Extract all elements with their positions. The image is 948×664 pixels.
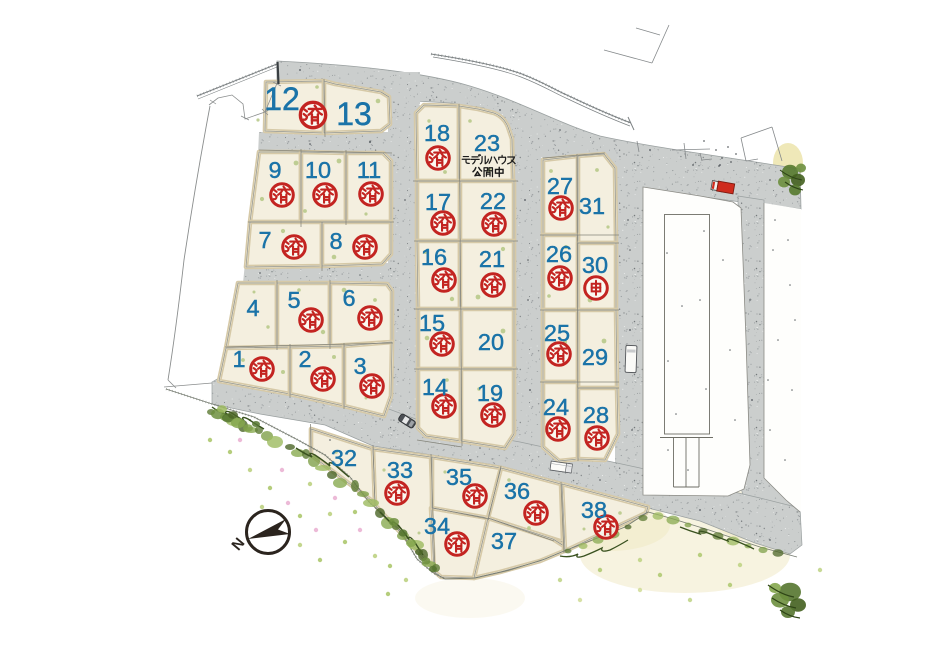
svg-text:7: 7 bbox=[258, 227, 271, 253]
svg-text:33: 33 bbox=[387, 457, 413, 483]
svg-text:14: 14 bbox=[422, 374, 448, 400]
svg-text:22: 22 bbox=[480, 188, 506, 214]
svg-text:1: 1 bbox=[232, 346, 245, 372]
svg-text:12: 12 bbox=[264, 81, 300, 117]
svg-text:32: 32 bbox=[331, 445, 357, 471]
svg-text:31: 31 bbox=[579, 193, 605, 219]
svg-text:23: 23 bbox=[474, 130, 500, 156]
svg-text:25: 25 bbox=[544, 320, 570, 346]
svg-text:19: 19 bbox=[477, 380, 503, 406]
svg-text:29: 29 bbox=[582, 344, 608, 370]
svg-text:24: 24 bbox=[543, 394, 569, 420]
svg-text:37: 37 bbox=[491, 528, 517, 554]
svg-text:4: 4 bbox=[246, 295, 259, 321]
svg-text:2: 2 bbox=[298, 346, 311, 372]
svg-text:21: 21 bbox=[479, 246, 505, 272]
svg-text:35: 35 bbox=[446, 464, 472, 490]
svg-text:3: 3 bbox=[353, 353, 366, 379]
svg-text:30: 30 bbox=[582, 252, 608, 278]
svg-text:17: 17 bbox=[425, 189, 451, 215]
svg-text:6: 6 bbox=[342, 285, 355, 311]
svg-text:34: 34 bbox=[424, 513, 450, 539]
svg-text:36: 36 bbox=[504, 478, 530, 504]
svg-text:38: 38 bbox=[581, 497, 607, 523]
svg-text:5: 5 bbox=[287, 287, 300, 313]
svg-text:16: 16 bbox=[421, 244, 447, 270]
svg-text:20: 20 bbox=[478, 329, 504, 355]
svg-text:10: 10 bbox=[305, 157, 331, 183]
svg-text:27: 27 bbox=[547, 173, 573, 199]
svg-text:26: 26 bbox=[546, 241, 572, 267]
svg-text:11: 11 bbox=[357, 157, 381, 183]
svg-text:18: 18 bbox=[424, 120, 450, 146]
svg-text:13: 13 bbox=[336, 96, 372, 132]
svg-text:8: 8 bbox=[329, 228, 342, 254]
svg-text:15: 15 bbox=[419, 310, 445, 336]
svg-text:28: 28 bbox=[583, 402, 609, 428]
svg-text:9: 9 bbox=[268, 157, 281, 183]
